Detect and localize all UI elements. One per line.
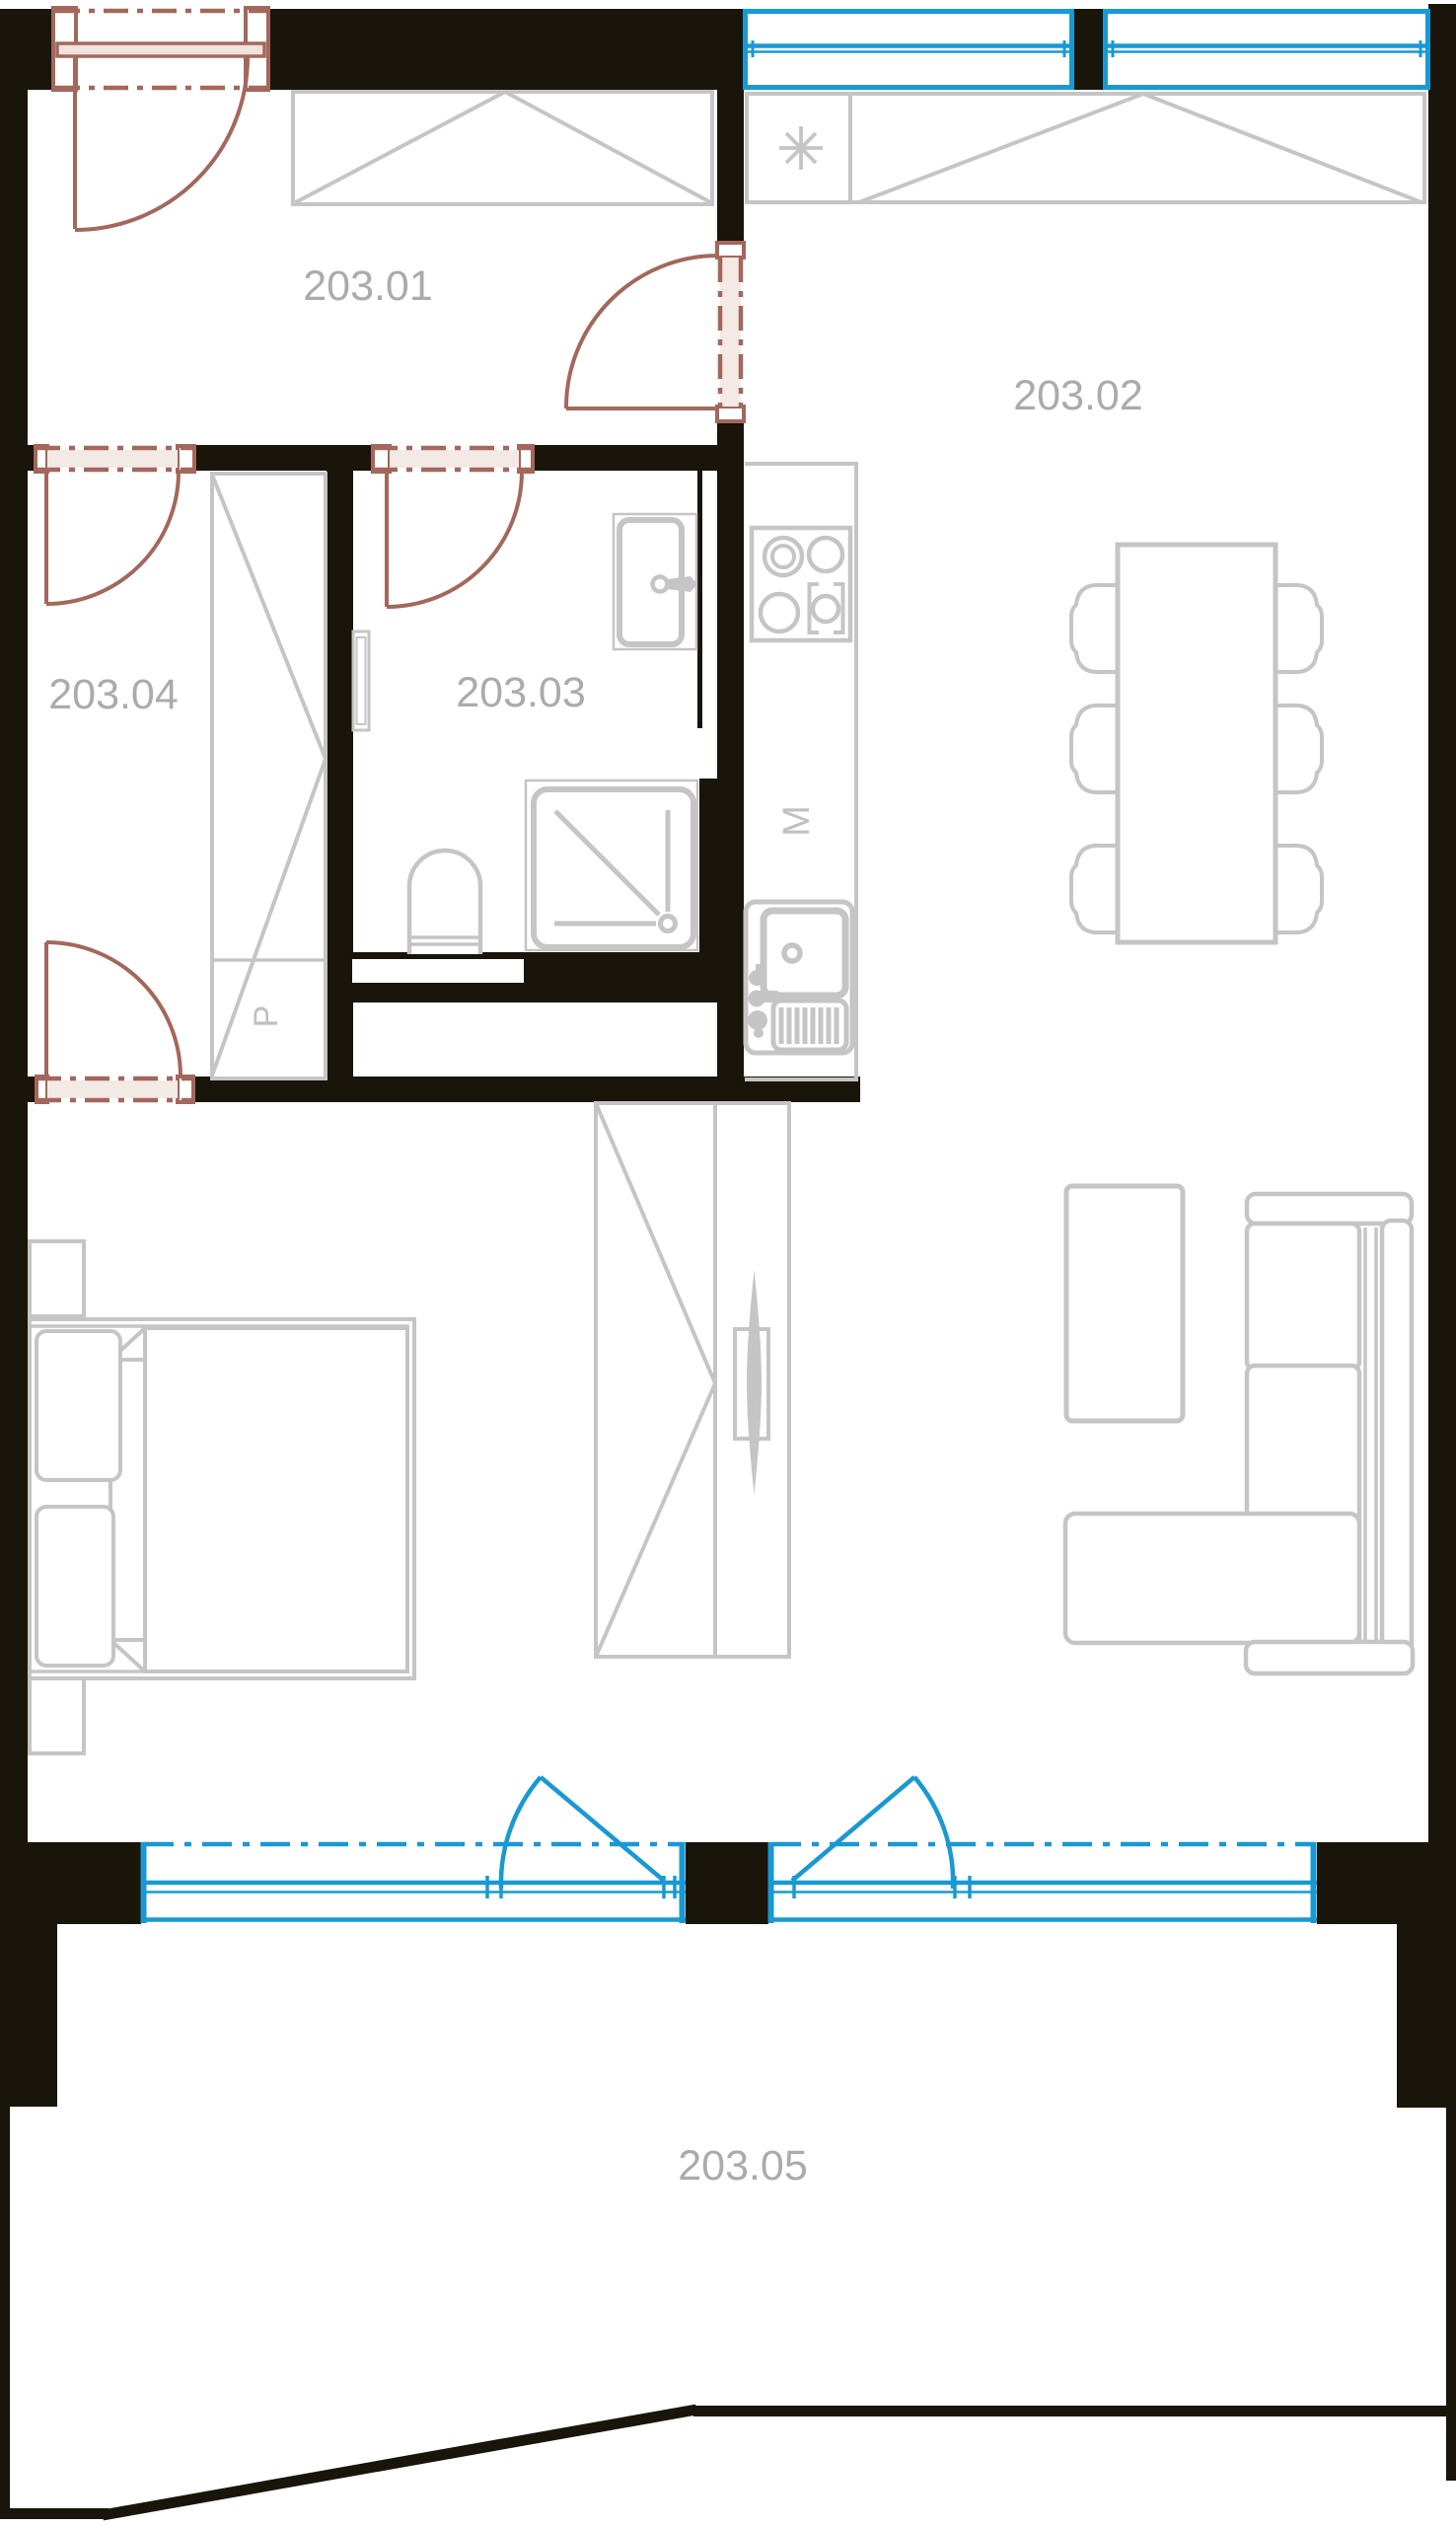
svg-text:203.01: 203.01 <box>303 262 433 310</box>
svg-text:M: M <box>776 805 818 837</box>
svg-text:P: P <box>248 1005 285 1028</box>
svg-text:203.05: 203.05 <box>678 2142 808 2190</box>
svg-text:203.04: 203.04 <box>48 671 179 718</box>
svg-text:203.02: 203.02 <box>1013 372 1143 419</box>
svg-text:203.03: 203.03 <box>456 669 586 716</box>
